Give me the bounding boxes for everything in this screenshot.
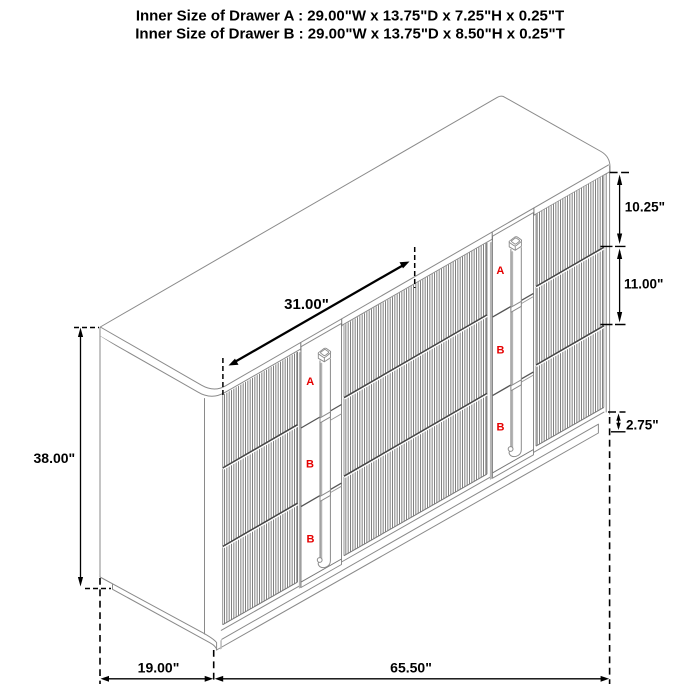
svg-text:38.00": 38.00" (34, 450, 76, 466)
svg-text:Inner Size of Drawer B : 29.00: Inner Size of Drawer B : 29.00"W x 13.75… (135, 26, 564, 43)
svg-text:31.00": 31.00" (284, 296, 329, 313)
svg-text:19.00": 19.00" (138, 660, 180, 676)
svg-text:B: B (306, 458, 314, 470)
svg-text:10.25": 10.25" (625, 200, 665, 215)
svg-text:B: B (497, 344, 505, 356)
svg-text:11.00": 11.00" (624, 277, 663, 292)
svg-text:A: A (306, 376, 314, 388)
svg-text:65.50": 65.50" (390, 660, 432, 676)
svg-text:2.75": 2.75" (626, 418, 659, 433)
svg-text:B: B (307, 534, 315, 546)
svg-text:B: B (497, 421, 505, 433)
svg-text:Inner Size of Drawer A : 29.00: Inner Size of Drawer A : 29.00"W x 13.75… (136, 7, 564, 24)
svg-text:A: A (496, 265, 504, 277)
